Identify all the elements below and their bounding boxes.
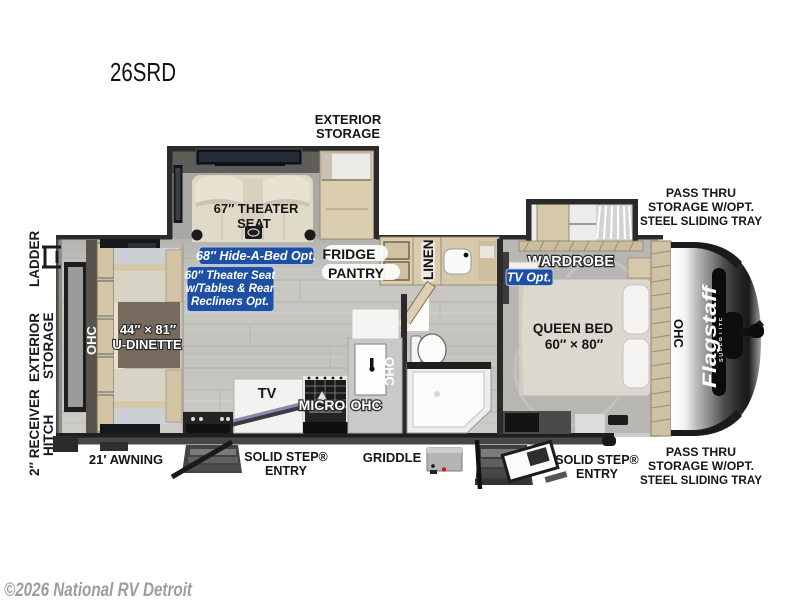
svg-text:21′ AWNING: 21′ AWNING: [89, 452, 163, 467]
svg-text:FRIDGE: FRIDGE: [323, 246, 376, 262]
svg-text:67″ THEATER: 67″ THEATER: [214, 201, 299, 216]
svg-text:60″ Theater Seat: 60″ Theater Seat: [185, 270, 277, 282]
svg-text:60″ × 80″: 60″ × 80″: [545, 337, 604, 352]
svg-text:STEEL SLIDING TRAY: STEEL SLIDING TRAY: [640, 473, 762, 487]
svg-text:OHC: OHC: [350, 397, 381, 413]
svg-text:STORAGE: STORAGE: [316, 126, 380, 141]
svg-text:OHC: OHC: [671, 319, 686, 349]
svg-text:SEAT: SEAT: [237, 216, 271, 231]
svg-text:U-DINETTE: U-DINETTE: [112, 337, 182, 352]
svg-text:PANTRY: PANTRY: [328, 265, 385, 281]
svg-text:STORAGE: STORAGE: [41, 312, 56, 379]
svg-text:MICRO: MICRO: [299, 397, 346, 413]
svg-text:ENTRY: ENTRY: [576, 467, 619, 481]
svg-text:Flagstaff: Flagstaff: [700, 284, 721, 388]
svg-text:PASS THRU: PASS THRU: [666, 445, 736, 459]
svg-text:STEEL SLIDING TRAY: STEEL SLIDING TRAY: [640, 214, 762, 228]
svg-text:ENTRY: ENTRY: [265, 464, 308, 478]
svg-text:STORAGE W/OPT.: STORAGE W/OPT.: [648, 200, 754, 214]
svg-text:©2026 National RV Detroit: ©2026 National RV Detroit: [4, 579, 193, 600]
svg-text:Recliners Opt.: Recliners Opt.: [191, 296, 269, 308]
svg-text:LINEN: LINEN: [421, 240, 436, 281]
svg-text:EXTERIOR: EXTERIOR: [315, 112, 382, 127]
svg-text:PASS THRU: PASS THRU: [666, 186, 736, 200]
svg-text:TV Opt.: TV Opt.: [507, 271, 551, 285]
svg-text:68″ Hide-A-Bed Opt.: 68″ Hide-A-Bed Opt.: [196, 249, 316, 263]
svg-text:EXTERIOR: EXTERIOR: [27, 313, 42, 382]
svg-text:2″ RECEIVER: 2″ RECEIVER: [27, 389, 42, 476]
svg-text:26SRD: 26SRD: [110, 57, 176, 87]
svg-text:w/Tables & Rear: w/Tables & Rear: [186, 283, 275, 295]
svg-text:OHC: OHC: [382, 357, 397, 387]
svg-text:QUEEN BED: QUEEN BED: [533, 321, 614, 336]
svg-text:LADDER: LADDER: [27, 231, 42, 287]
svg-text:44″ × 81″: 44″ × 81″: [120, 322, 176, 337]
svg-text:SOLID STEP®: SOLID STEP®: [555, 453, 639, 467]
svg-text:GRIDDLE: GRIDDLE: [363, 450, 422, 465]
svg-text:TV: TV: [258, 386, 277, 402]
svg-text:SOLID STEP®: SOLID STEP®: [244, 450, 328, 464]
svg-text:WARDROBE: WARDROBE: [528, 254, 615, 270]
svg-text:STORAGE W/OPT.: STORAGE W/OPT.: [648, 459, 754, 473]
